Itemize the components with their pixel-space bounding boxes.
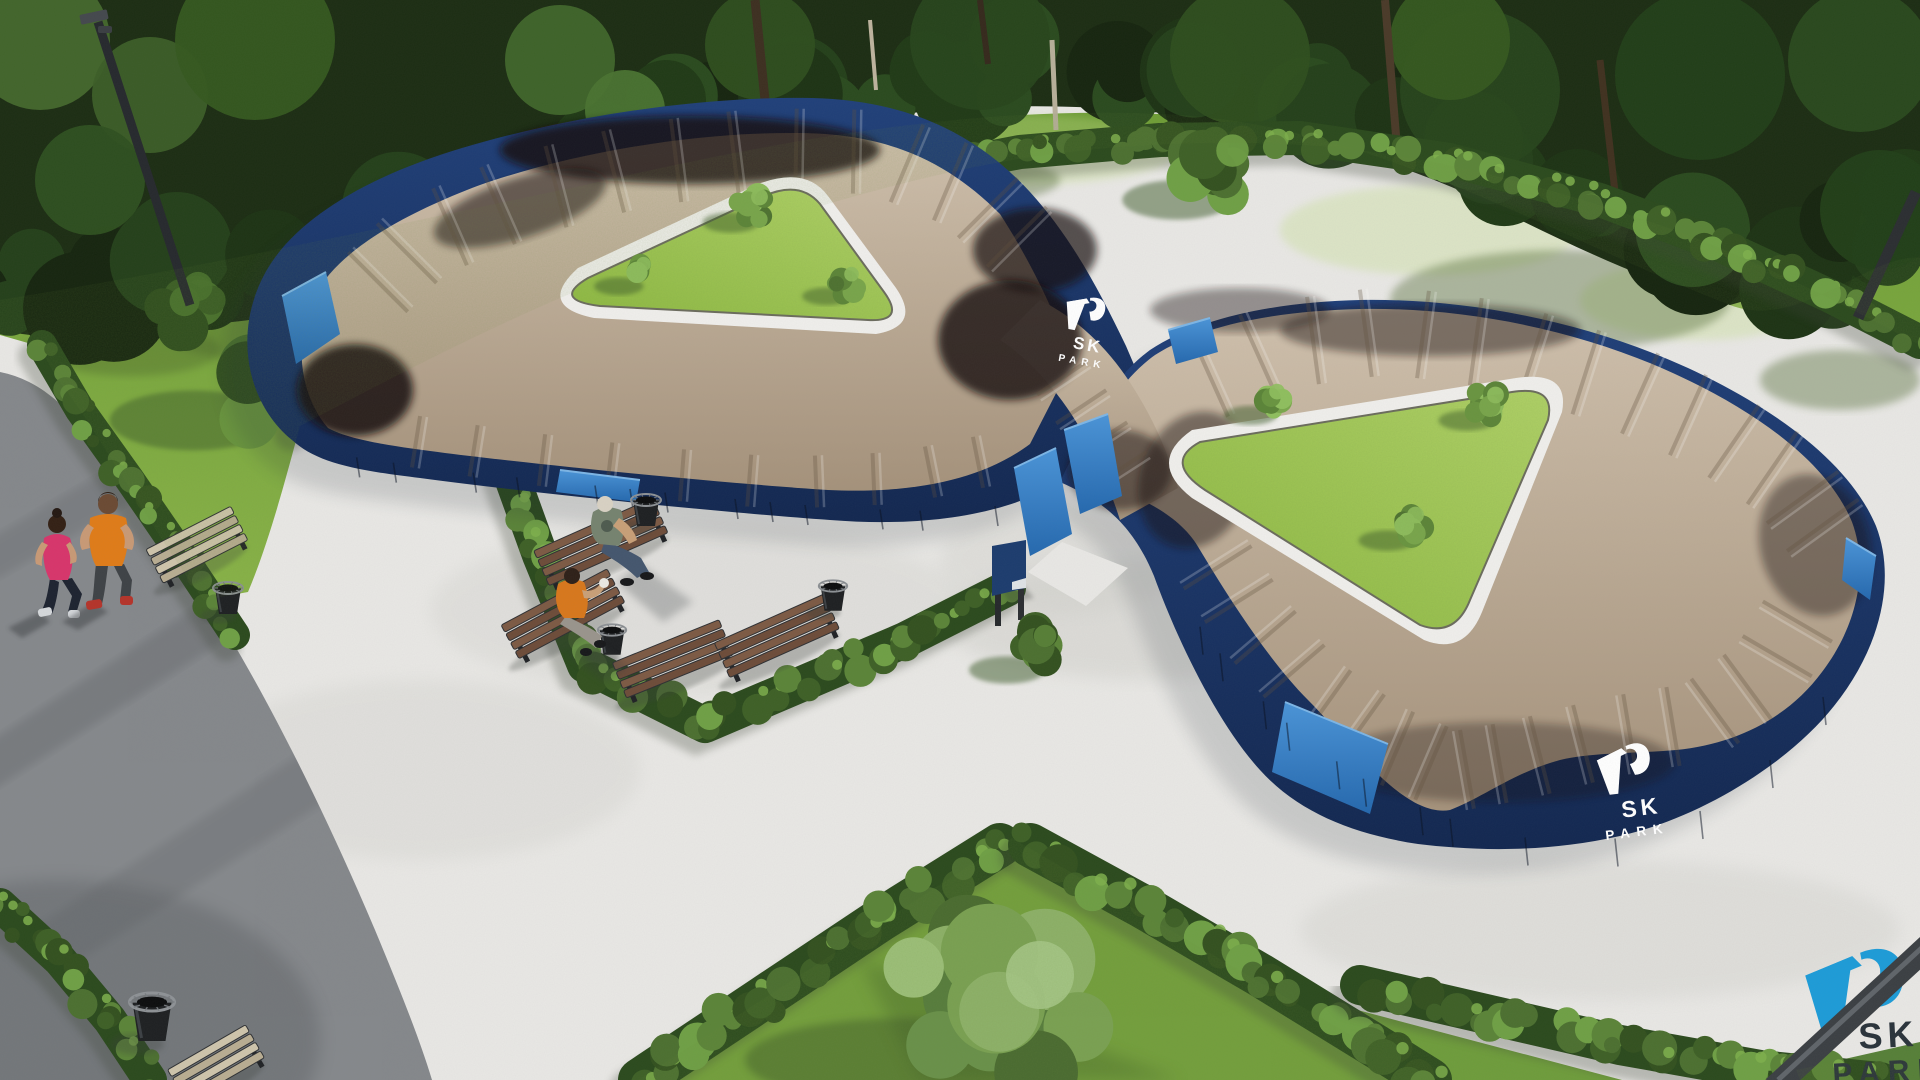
global-grain [0, 0, 1920, 1080]
scene-svg: SK PARK SK PARK [0, 0, 1920, 1080]
park-render: SK PARK SK PARK [0, 0, 1920, 1080]
